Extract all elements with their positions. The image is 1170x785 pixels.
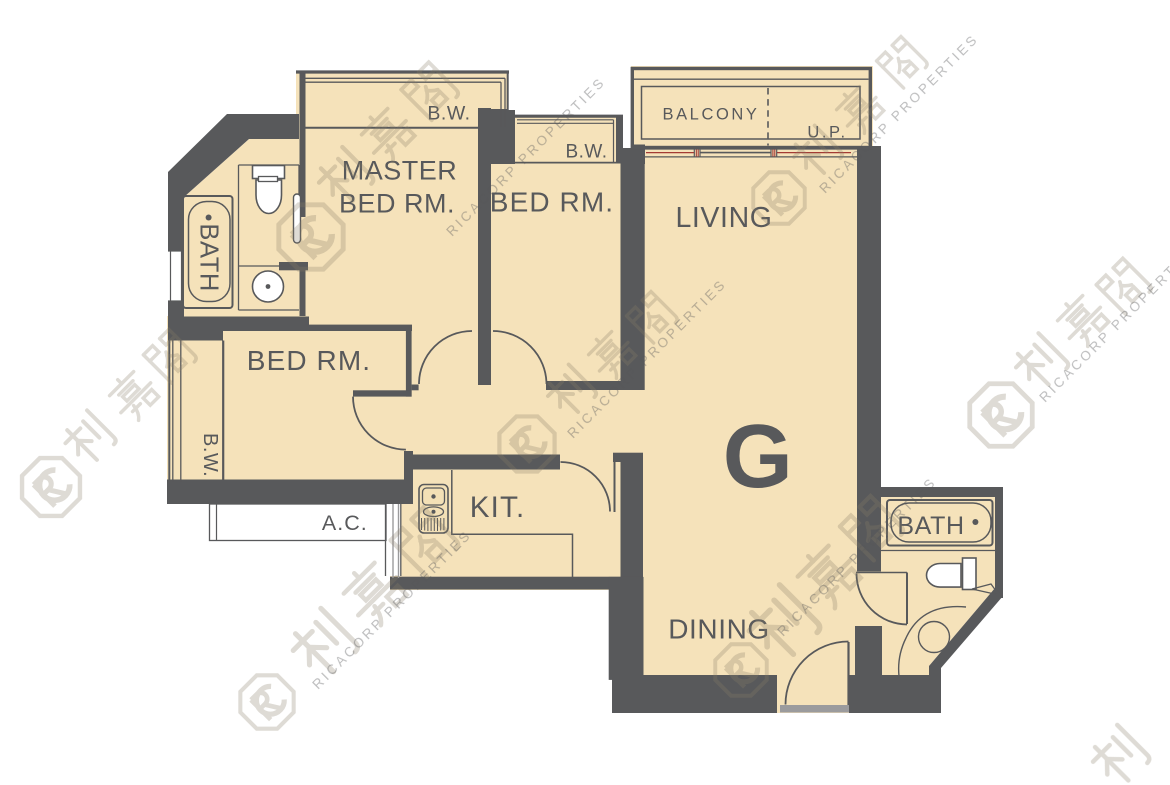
svg-text:KIT.: KIT.: [470, 491, 526, 524]
svg-text:BATH: BATH: [195, 223, 223, 292]
svg-text:B.W.: B.W.: [427, 103, 470, 125]
svg-text:RICACORP PROPERTIES: RICACORP PROPERTIES: [1037, 240, 1170, 405]
svg-text:B.W.: B.W.: [565, 142, 607, 163]
svg-text:A.C.: A.C.: [322, 511, 368, 535]
svg-text:B.W.: B.W.: [199, 433, 221, 477]
svg-text:BED RM.: BED RM.: [490, 187, 614, 218]
svg-text:MASTER: MASTER: [342, 156, 458, 186]
svg-text:RICACORP PROPERTIES: RICACORP PROPERTIES: [310, 527, 475, 692]
svg-text:G: G: [723, 407, 793, 507]
svg-text:BED RM.: BED RM.: [247, 345, 371, 376]
svg-text:BALCONY: BALCONY: [662, 106, 759, 124]
svg-text:LIVING: LIVING: [675, 202, 772, 234]
svg-text:BED RM.: BED RM.: [339, 189, 455, 219]
